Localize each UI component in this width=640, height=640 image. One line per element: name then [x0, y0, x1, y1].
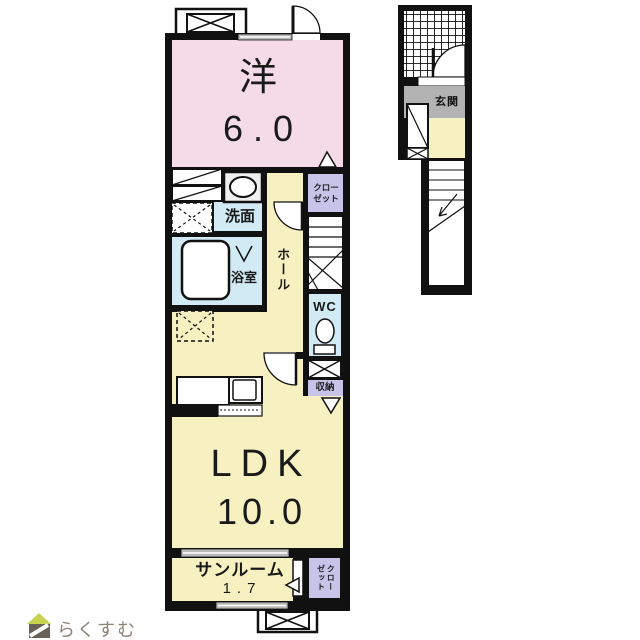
- entrance-threshold: [418, 77, 465, 86]
- label-closet-lower-col1: クロー: [326, 565, 335, 592]
- window-western-top: [238, 34, 292, 40]
- floorplan-drawing: [0, 0, 640, 640]
- label-washroom: 洗面: [225, 209, 255, 226]
- western-room-top-door-arc: [293, 6, 320, 33]
- label-sunroom-area: 1.7: [223, 581, 262, 598]
- bathtub: [182, 241, 229, 299]
- shelf-counter: [172, 169, 222, 201]
- refrigerator-space: [177, 311, 213, 341]
- label-ldk-area: 10.0: [217, 492, 307, 532]
- label-closet-upper-line2: ゼット: [313, 193, 339, 204]
- label-entrance: 玄関: [435, 96, 459, 108]
- label-closet-upper-line1: クロー: [313, 182, 339, 193]
- storage-top-box: [308, 360, 341, 378]
- vanity-sink: [224, 172, 262, 202]
- label-closet-upper: クロー ゼット: [313, 182, 339, 203]
- shoe-cabinet: [407, 104, 428, 159]
- window-sunroom-top: [181, 549, 289, 557]
- label-storage: 収納: [315, 383, 334, 393]
- label-bathroom: 浴室: [231, 271, 257, 285]
- logo-text: らくすむ: [57, 616, 137, 640]
- entrance-hall-floor: [428, 118, 465, 158]
- staircase-1f: [428, 160, 465, 286]
- kitchen-counter: [172, 377, 262, 417]
- label-closet-lower: クロー ゼット: [316, 565, 335, 592]
- label-western-room: 洋: [239, 58, 277, 100]
- label-sunroom: サンルーム: [195, 562, 285, 581]
- window-sunroom-bottom: [216, 602, 288, 609]
- floorplan-image: 洋 6.0 洗面 浴室 ホール クロー ゼット WC 収納 LDK 10.0 サ…: [0, 0, 640, 640]
- ac-unit-top: [176, 9, 246, 36]
- washing-machine-space: [172, 203, 212, 233]
- label-closet-lower-col2: ゼット: [316, 565, 325, 592]
- label-western-room-area: 6.0: [223, 109, 303, 149]
- label-ldk: LDK: [211, 444, 312, 486]
- threshold-top-door: [292, 34, 320, 40]
- staircase-2f: [308, 216, 343, 290]
- label-hall: ホール: [275, 248, 289, 293]
- toilet: [314, 319, 335, 354]
- label-wc: WC: [313, 300, 337, 314]
